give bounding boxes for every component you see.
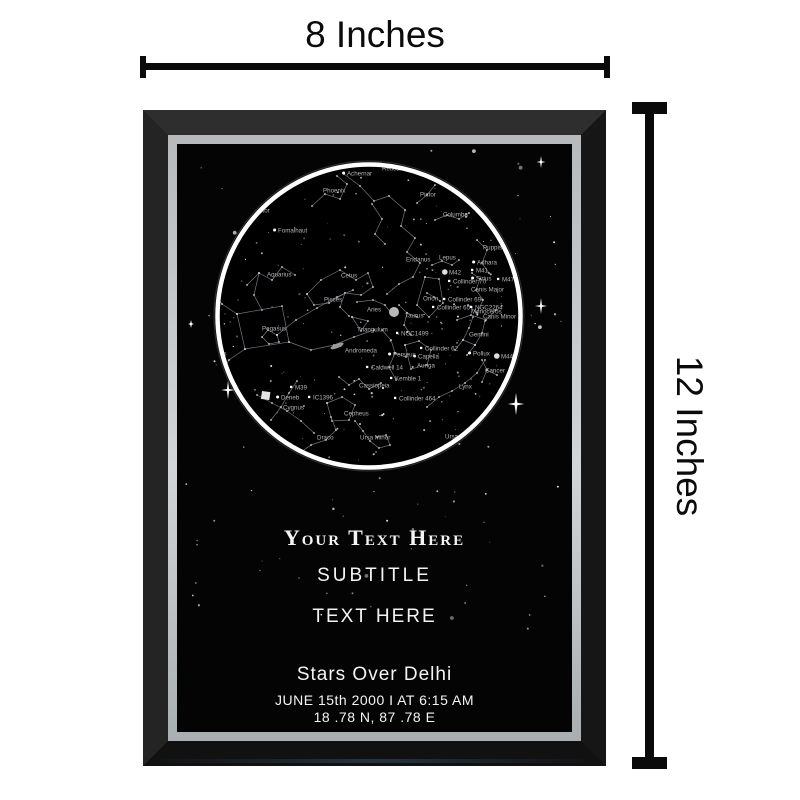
picture-frame: AchernarReticulumPhoenixPictorColumbaScu… [143,110,606,766]
constellation-label: Cancer [485,367,505,374]
constellation-label: Gemini [469,331,489,338]
constellation-label: Auriga [417,362,435,369]
constellation-label: Deneb [281,394,300,401]
poster-title: Your Text Here [177,525,572,551]
constellation-label: Phoenix [323,187,346,194]
constellation-label: Orion [423,295,439,302]
constellation-label: Kemble 1 [395,375,422,382]
height-dimension-label: 12 Inches [668,356,710,516]
constellation-label: IC1396 [313,394,334,401]
constellation-label: Collinder 62 [425,345,459,352]
width-dimension-cap-right [604,56,610,78]
frame-bottom-reflection [150,759,600,763]
constellation-label: Pollux [473,350,491,357]
constellation-label: Triangulum [357,326,388,333]
constellation-label: Cygnus [283,404,304,411]
constellation-label: NGC2264 [475,304,503,311]
constellation-label: Eridanus [406,256,430,263]
constellation-label: Perseus [393,351,416,358]
poster-coordinates: 18 .78 N, 87 .78 E [177,709,572,725]
poster-subtitle: SUBTITLE [177,565,572,587]
constellation-label: M42 [449,269,462,276]
constellation-label: Lynx [459,383,473,390]
constellation-label: Collinder 65 [437,304,471,311]
constellation-label: Aries [367,306,381,313]
constellation-label: Pegasus [262,325,286,332]
product-image: 8 Inches 12 Inches AchernarReticulumPhoe… [0,0,800,800]
constellation-label: Ursa Minor [360,434,390,441]
star-map-poster: AchernarReticulumPhoenixPictorColumbaScu… [177,144,572,732]
constellation-label: Collinder 70 [453,278,487,285]
constellation-label: Draco [317,434,334,441]
poster-text-line: TEXT HERE [177,606,572,628]
constellation-label: Cetus [341,272,357,279]
constellation-label: Caldwell 14 [371,364,404,371]
poster-location: Stars Over Delhi [177,664,572,686]
constellation-label: Puppis [483,244,502,251]
star-map-svg: AchernarReticulumPhoenixPictorColumbaScu… [177,144,572,732]
constellation-label: Cassiopeia [359,382,390,389]
constellation-label: Achernar [347,170,372,177]
constellation-label: Fomalhaut [278,227,308,234]
constellation-label: NGC1499 [401,330,429,337]
constellation-label: Adhara [477,259,498,266]
constellation-label: Columba [443,211,468,218]
constellation-label: Pictor [420,191,436,198]
height-dimension-line [645,104,654,768]
constellation-label: M47 [502,276,515,283]
poster-datetime: JUNE 15th 2000 I AT 6:15 AM [177,692,572,708]
constellation-label: Capella [418,353,440,360]
width-dimension-label: 8 Inches [140,14,610,56]
constellation-label: Aquarius [267,271,291,278]
height-dimension-cap-top [632,102,667,114]
constellation-label: M39 [295,384,308,391]
moon-disc [389,307,399,317]
constellation-label: M41 [476,267,489,274]
constellation-label: Collinder 464 [399,395,436,402]
constellation-label: Pisces [324,296,342,303]
constellation-label: Taurus [405,312,424,319]
constellation-label: Andromeda [345,347,378,354]
constellation-label: Canis Major [471,286,504,293]
constellation-label: M44 [501,353,514,360]
height-dimension-cap-bottom [632,757,667,769]
width-dimension-cap-left [140,56,146,78]
constellation-label: Lepus [439,254,456,261]
width-dimension-line [140,63,610,70]
constellation-label: Cepheus [344,410,369,417]
constellation-label: Collinder 69 [448,296,482,303]
constellation-label: Canis Minor [483,313,516,320]
bright-nebula-patch [261,391,271,400]
